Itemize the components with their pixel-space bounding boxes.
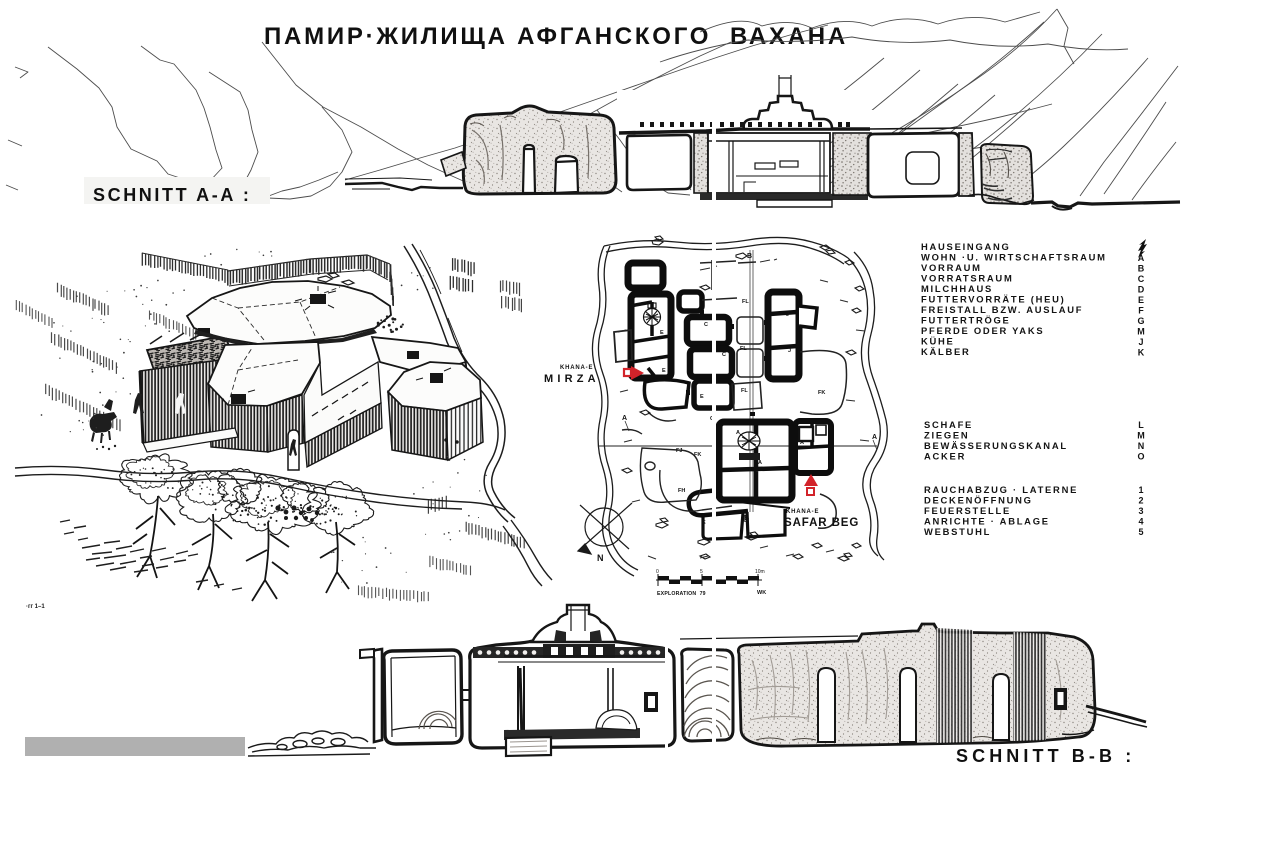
svg-text:FL: FL xyxy=(741,388,748,394)
svg-text:C: C xyxy=(704,322,708,328)
svg-text:N: N xyxy=(597,553,604,563)
svg-text:D: D xyxy=(1138,285,1145,295)
svg-text:B: B xyxy=(747,253,752,260)
svg-text:ZIEGEN: ZIEGEN xyxy=(924,430,969,441)
svg-text:10m: 10m xyxy=(755,569,765,575)
svg-text:J: J xyxy=(1138,337,1143,347)
svg-text:SCHNITT A-A :: SCHNITT A-A : xyxy=(93,185,251,205)
svg-text:·гг 1–1: ·гг 1–1 xyxy=(26,604,45,610)
svg-text:VORRAUM: VORRAUM xyxy=(921,262,982,273)
svg-text:ПАМИР·ЖИЛИЩА АФГАНСКОГО ВАХАН: ПАМИР·ЖИЛИЩА АФГАНСКОГО ВАХАНА xyxy=(264,23,848,50)
svg-text:N: N xyxy=(1138,441,1145,451)
svg-text:0: 0 xyxy=(656,569,659,575)
svg-text:HAUSEINGANG: HAUSEINGANG xyxy=(921,241,1011,252)
svg-text:A: A xyxy=(736,430,740,436)
svg-text:FUTTERVORRÄTE (HEU): FUTTERVORRÄTE (HEU) xyxy=(921,294,1066,305)
svg-text:A: A xyxy=(872,434,877,441)
svg-text:C: C xyxy=(1138,274,1145,284)
svg-text:J: J xyxy=(786,312,789,318)
svg-text:J: J xyxy=(788,348,791,354)
svg-text:KHANA-E: KHANA-E xyxy=(560,365,593,371)
svg-text:C: C xyxy=(722,352,726,358)
svg-text:L: L xyxy=(1138,420,1144,430)
svg-text:M: M xyxy=(1137,431,1145,441)
svg-text:2: 2 xyxy=(1138,496,1143,506)
svg-text:K: K xyxy=(1138,348,1145,358)
svg-text:SCHNITT B-B :: SCHNITT B-B : xyxy=(956,746,1135,766)
svg-text:E: E xyxy=(660,330,664,336)
svg-text:WK: WK xyxy=(757,590,766,596)
svg-text:O: O xyxy=(1137,452,1144,462)
svg-text:FK: FK xyxy=(694,452,701,458)
svg-text:DECKENÖFFNUNG: DECKENÖFFNUNG xyxy=(924,495,1033,506)
svg-text:WEBSTUHL: WEBSTUHL xyxy=(924,526,991,537)
svg-text:MILCHHAUS: MILCHHAUS xyxy=(921,283,993,294)
svg-text:5: 5 xyxy=(700,569,703,575)
svg-text:FREISTALL BZW. AUSLAUF: FREISTALL BZW. AUSLAUF xyxy=(921,304,1083,315)
svg-text:G: G xyxy=(1137,316,1144,326)
svg-text:KHANA-E: KHANA-E xyxy=(786,509,819,515)
svg-text:A: A xyxy=(800,440,804,446)
svg-text:MIRZA: MIRZA xyxy=(544,373,600,385)
svg-text:FH: FH xyxy=(678,488,685,494)
svg-text:KÜHE: KÜHE xyxy=(921,336,955,347)
svg-text:F: F xyxy=(1138,306,1144,316)
svg-text:FEUERSTELLE: FEUERSTELLE xyxy=(924,505,1011,516)
svg-text:4: 4 xyxy=(1138,517,1143,527)
svg-text:A: A xyxy=(622,415,627,422)
svg-text:WOHN ·U. WIRTSCHAFTSRAUM: WOHN ·U. WIRTSCHAFTSRAUM xyxy=(921,252,1107,263)
svg-text:FL: FL xyxy=(740,346,747,352)
svg-text:VORRATSRAUM: VORRATSRAUM xyxy=(921,273,1014,284)
svg-text:PFERDE ODER YAKS: PFERDE ODER YAKS xyxy=(921,325,1044,336)
svg-text:FUTTERTRÖGE: FUTTERTRÖGE xyxy=(921,315,1011,326)
svg-text:FK: FK xyxy=(818,390,825,396)
svg-text:M: M xyxy=(1137,327,1145,337)
svg-text:E: E xyxy=(1138,295,1144,305)
svg-text:E: E xyxy=(702,520,706,526)
svg-text:E: E xyxy=(662,368,666,374)
svg-text:A: A xyxy=(758,460,762,466)
svg-text:E: E xyxy=(700,394,704,400)
svg-text:1: 1 xyxy=(1138,485,1143,495)
svg-text:SAFAR BEG: SAFAR BEG xyxy=(784,517,859,529)
svg-text:3: 3 xyxy=(1138,506,1143,516)
svg-text:RAUCHABZUG · LATERNE: RAUCHABZUG · LATERNE xyxy=(924,484,1078,495)
svg-text:EXPLORATION 79: EXPLORATION 79 xyxy=(657,591,706,597)
svg-text:ANRICHTE · ABLAGE: ANRICHTE · ABLAGE xyxy=(924,516,1050,527)
svg-text:FL: FL xyxy=(742,299,749,305)
svg-text:5: 5 xyxy=(1138,527,1143,537)
svg-text:B: B xyxy=(1138,264,1145,274)
svg-text:BEWÄSSERUNGSKANAL: BEWÄSSERUNGSKANAL xyxy=(924,440,1068,451)
svg-text:KÄLBER: KÄLBER xyxy=(921,346,971,357)
svg-text:FJ: FJ xyxy=(676,448,682,454)
svg-text:SCHAFE: SCHAFE xyxy=(924,419,973,430)
svg-text:ACKER: ACKER xyxy=(924,451,966,462)
